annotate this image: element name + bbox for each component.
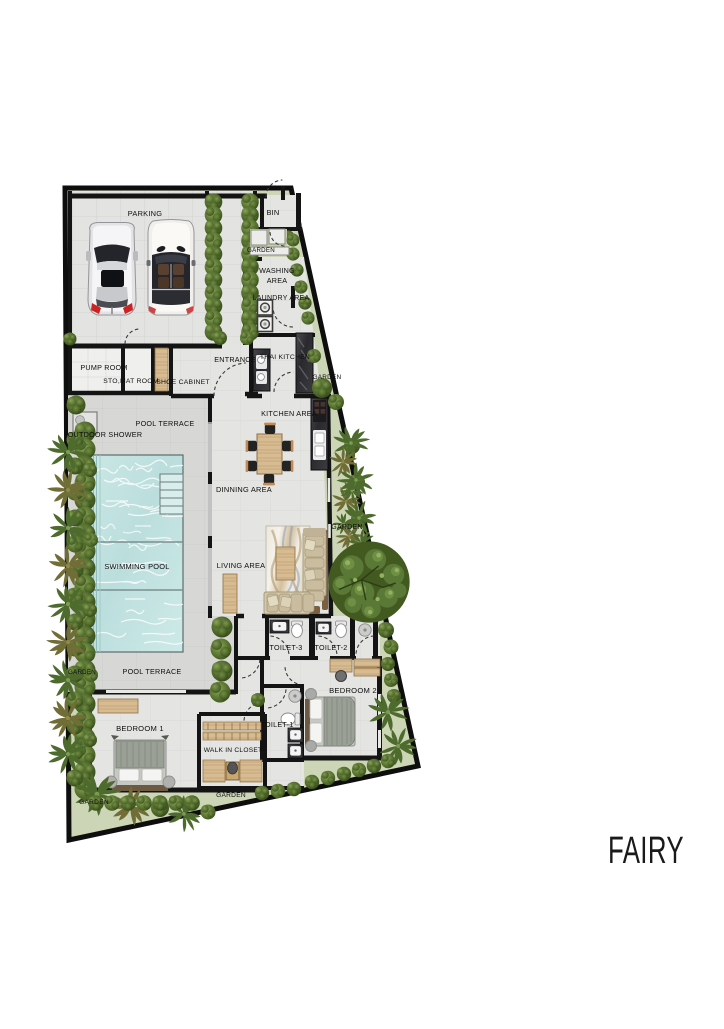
svg-text:PARKING: PARKING [128, 209, 162, 218]
svg-text:WASHING: WASHING [259, 266, 295, 275]
svg-text:POOL TERRACE: POOL TERRACE [123, 667, 182, 676]
svg-text:LAUNDRY AREA: LAUNDRY AREA [253, 295, 310, 302]
svg-text:FAIRY: FAIRY [608, 829, 684, 871]
svg-text:TOILET-3: TOILET-3 [269, 643, 302, 652]
svg-text:STO,MAT ROOM: STO,MAT ROOM [103, 378, 159, 385]
svg-text:GARDEN: GARDEN [79, 799, 109, 806]
svg-text:TOILET-1: TOILET-1 [260, 720, 293, 729]
svg-text:BEDROOM 1: BEDROOM 1 [116, 724, 164, 733]
svg-text:GARDEN: GARDEN [331, 524, 362, 531]
svg-text:GARDEN: GARDEN [216, 792, 246, 799]
svg-text:OUTDOOR SHOWER: OUTDOOR SHOWER [68, 430, 143, 439]
svg-text:GARDEN: GARDEN [247, 247, 275, 254]
svg-text:DINNING AREA: DINNING AREA [216, 485, 272, 494]
svg-text:THAI KITCHEN: THAI KITCHEN [260, 354, 310, 361]
svg-text:POOL TERRACE: POOL TERRACE [136, 419, 195, 428]
svg-text:KITCHEN AREA: KITCHEN AREA [261, 409, 317, 418]
svg-text:WALK IN CLOSET: WALK IN CLOSET [204, 747, 263, 754]
svg-text:PUMP ROOM: PUMP ROOM [80, 363, 127, 372]
svg-text:GARDEN: GARDEN [68, 669, 96, 676]
svg-text:SHOE CABINET: SHOE CABINET [156, 379, 210, 386]
svg-text:ENTRANCE: ENTRANCE [214, 355, 256, 364]
svg-text:TOILET-2: TOILET-2 [314, 643, 347, 652]
svg-text:GARDEN: GARDEN [313, 374, 342, 381]
svg-text:AREA: AREA [267, 276, 288, 285]
svg-text:BIN: BIN [266, 208, 279, 217]
svg-text:LIVING AREA: LIVING AREA [217, 561, 266, 570]
svg-text:BEDROOM 2: BEDROOM 2 [329, 686, 377, 695]
svg-text:SWIMMING POOL: SWIMMING POOL [104, 562, 169, 571]
